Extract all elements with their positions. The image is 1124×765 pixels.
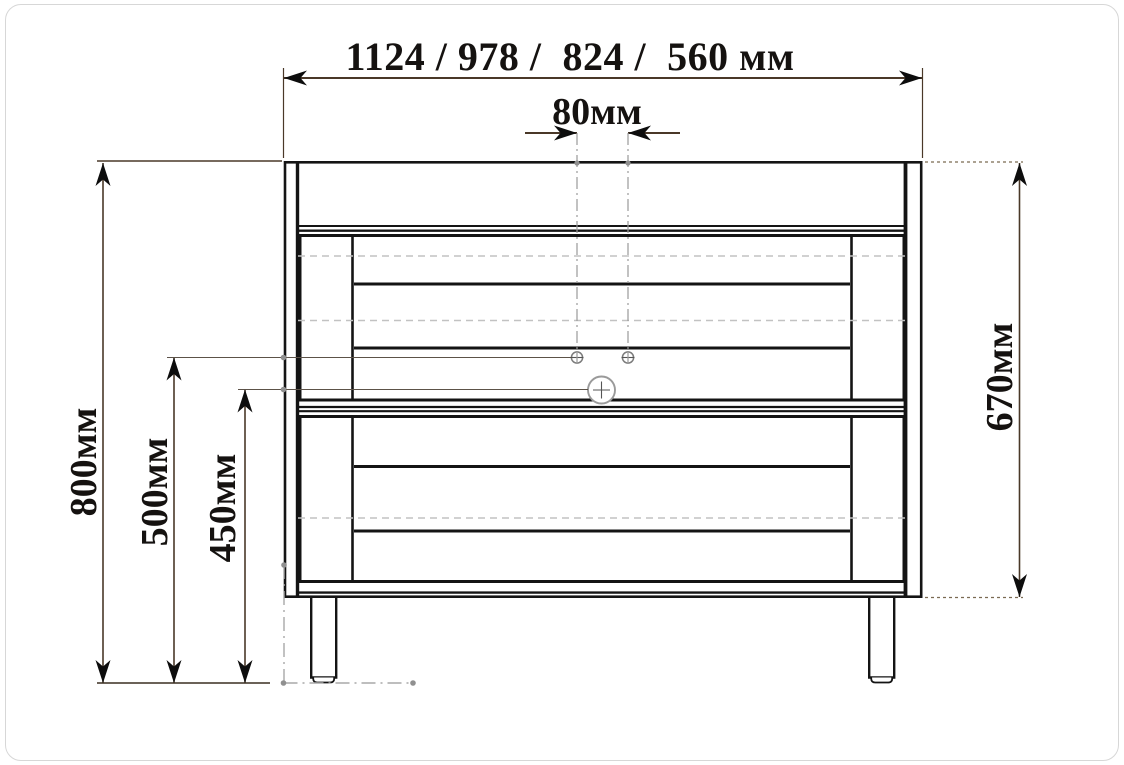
marker-dot xyxy=(281,562,287,568)
marker-dot xyxy=(574,160,579,165)
dimension-hole-spacing: 80мм xyxy=(525,91,680,364)
dimension-body-height: 670мм xyxy=(925,162,1027,598)
dimension-center-hole-height: 450мм xyxy=(202,390,588,684)
marker-dot xyxy=(281,387,287,393)
left-leg xyxy=(311,598,336,678)
mounting-holes xyxy=(571,352,635,404)
left-leg-foot xyxy=(313,678,334,683)
drawing-page: 1124 / 978 / 824 / 560 мм 80мм 800мм xyxy=(0,0,1124,765)
marker-dot xyxy=(281,355,287,361)
right-leg-foot xyxy=(871,678,892,683)
marker-dot xyxy=(625,160,630,165)
cabinet-front-view xyxy=(285,162,921,683)
upper-drawer-frame xyxy=(300,236,904,401)
right-leg xyxy=(869,598,894,678)
technical-drawing: 1124 / 978 / 824 / 560 мм 80мм 800мм xyxy=(0,0,1124,765)
dimension-body-height-label: 670мм xyxy=(979,323,1021,432)
dimension-holes-height-label: 500мм xyxy=(134,438,176,547)
dimension-center-hole-height-label: 450мм xyxy=(202,454,244,563)
dimension-hole-spacing-label: 80мм xyxy=(552,91,642,133)
marker-dot xyxy=(281,680,287,686)
marker-dot xyxy=(410,680,416,686)
dimension-overall-height: 800мм xyxy=(63,161,282,683)
dimension-overall-height-label: 800мм xyxy=(63,408,105,517)
dimension-width-options-label: 1124 / 978 / 824 / 560 мм xyxy=(345,34,794,79)
lower-drawer-frame xyxy=(300,417,904,582)
